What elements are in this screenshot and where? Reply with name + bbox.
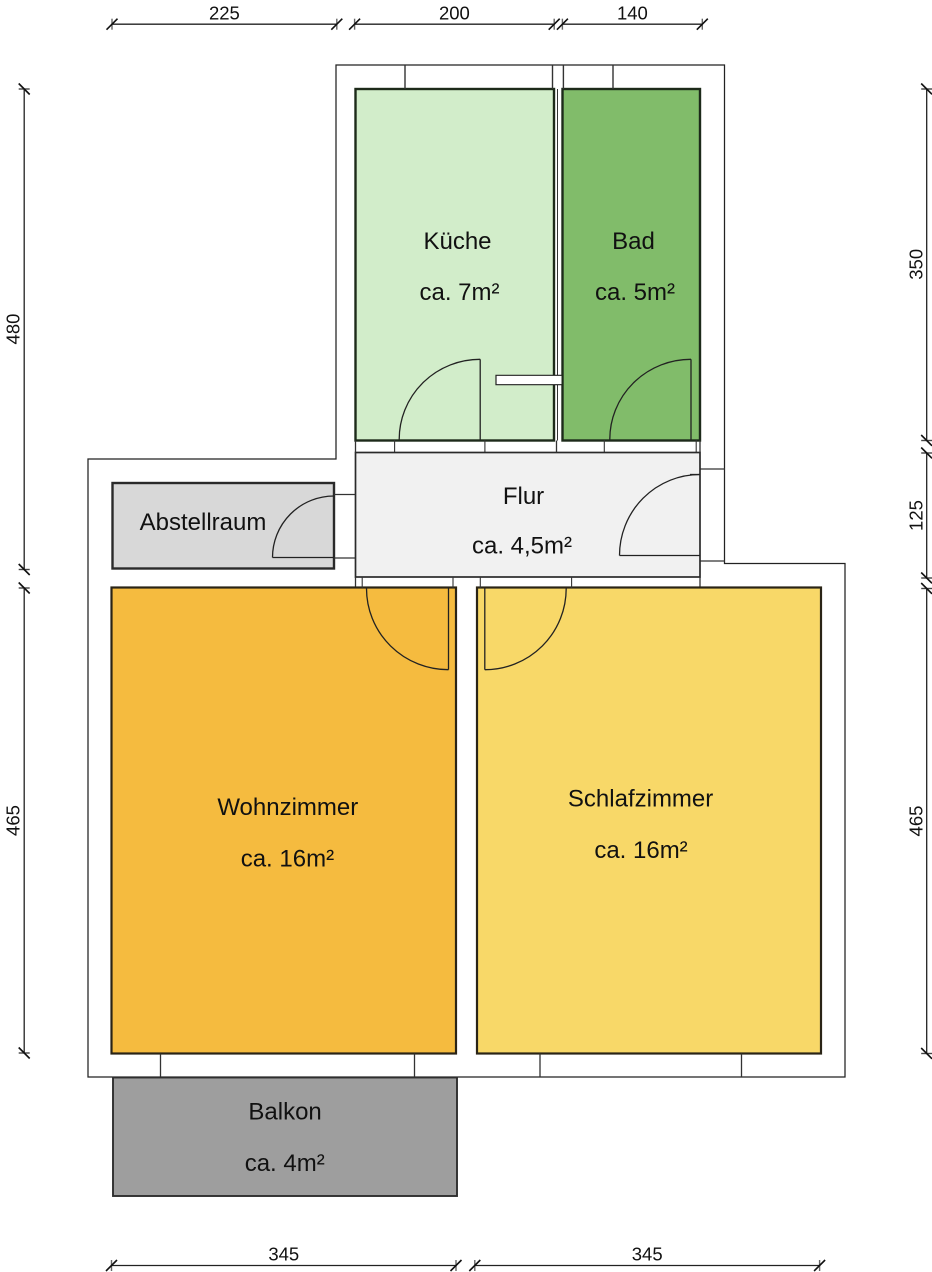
svg-text:465: 465 <box>905 806 926 837</box>
svg-text:125: 125 <box>905 500 926 531</box>
svg-text:ca. 4,5m²: ca. 4,5m² <box>472 533 572 560</box>
svg-text:ca. 4m²: ca. 4m² <box>245 1150 325 1177</box>
svg-text:Küche: Küche <box>423 228 491 255</box>
svg-text:465: 465 <box>3 805 24 836</box>
svg-text:Balkon: Balkon <box>248 1099 321 1126</box>
svg-text:ca. 16m²: ca. 16m² <box>241 846 334 873</box>
svg-text:345: 345 <box>632 1244 663 1265</box>
svg-text:200: 200 <box>439 3 470 24</box>
svg-text:ca. 7m²: ca. 7m² <box>419 279 499 306</box>
svg-text:140: 140 <box>617 3 648 24</box>
svg-text:Schlafzimmer: Schlafzimmer <box>568 786 713 813</box>
svg-text:225: 225 <box>209 3 240 24</box>
svg-text:Abstellraum: Abstellraum <box>140 509 267 536</box>
svg-text:Flur: Flur <box>503 483 544 510</box>
svg-text:ca. 16m²: ca. 16m² <box>594 837 687 864</box>
svg-text:345: 345 <box>268 1244 299 1265</box>
svg-text:480: 480 <box>3 314 24 345</box>
svg-text:350: 350 <box>905 249 926 280</box>
svg-text:ca. 5m²: ca. 5m² <box>595 279 675 306</box>
svg-text:Wohnzimmer: Wohnzimmer <box>217 794 358 821</box>
svg-text:Bad: Bad <box>612 228 655 255</box>
